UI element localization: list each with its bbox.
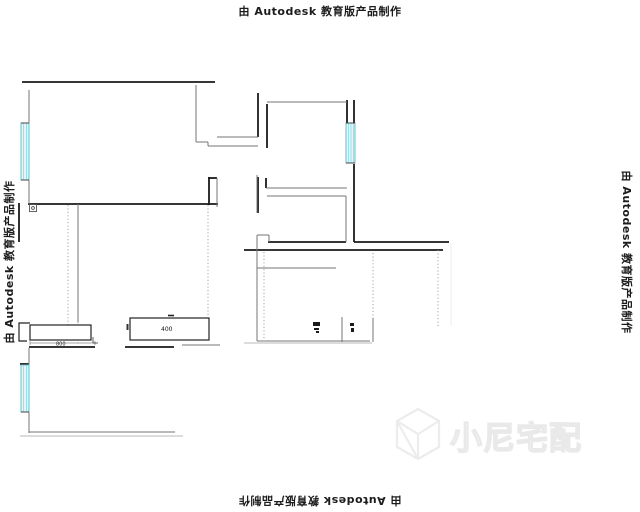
brand-watermark-text: 小尼宅配	[450, 419, 582, 457]
window-hatch-top-right	[346, 123, 355, 163]
walls-thick	[19, 82, 449, 364]
furniture-left-cabinet	[19, 323, 91, 341]
walls-thin	[29, 85, 373, 433]
cabinet-dimension-label: 400	[161, 326, 173, 333]
tiny-label-mark	[127, 324, 129, 330]
cad-canvas: 由 Autodesk 教育版产品制作 由 Autodesk 教育版产品制作 由 …	[0, 0, 640, 512]
window-hatch-top-left	[21, 123, 29, 180]
projection-lines	[68, 205, 438, 345]
tiny-label-marks	[313, 322, 354, 333]
cube-logo-icon	[397, 409, 439, 459]
brand-watermark: 小尼宅配	[393, 405, 628, 467]
dimension-left-label: 800	[56, 342, 66, 348]
window-hatch-bottom-left	[21, 365, 29, 412]
wall-detail-symbol	[30, 205, 37, 212]
walls-light	[20, 343, 372, 436]
